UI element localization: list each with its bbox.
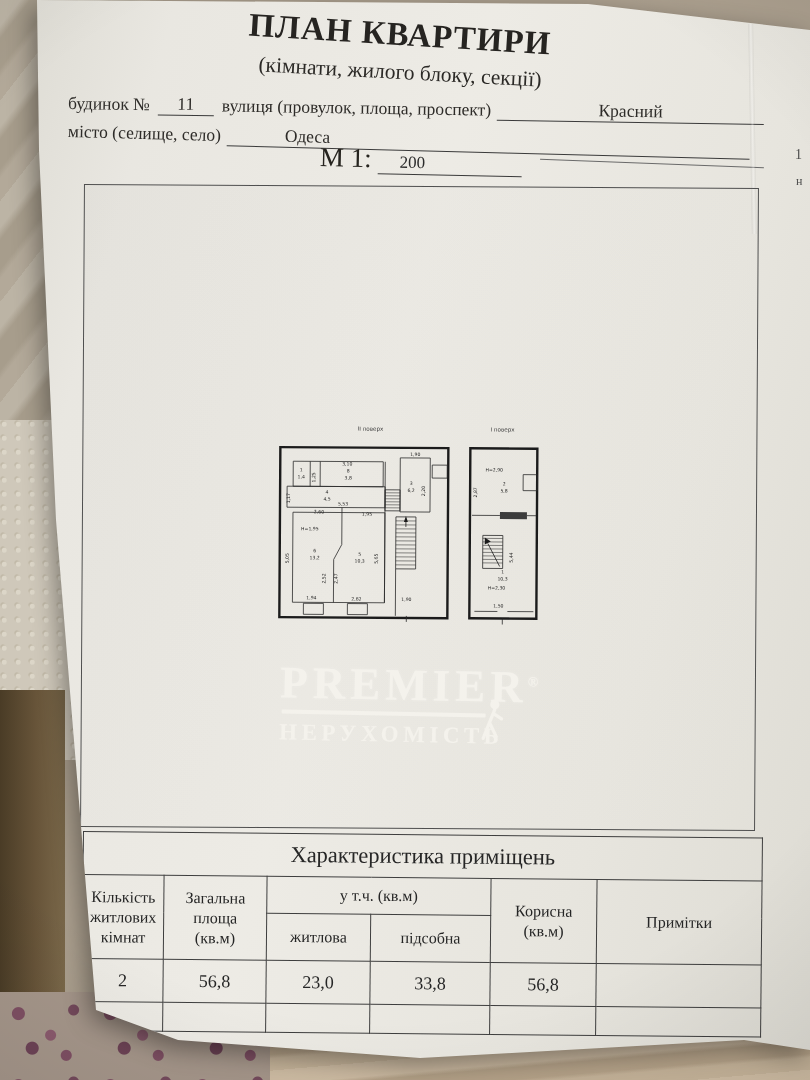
street-value: Красний bbox=[497, 99, 764, 125]
ruled-line bbox=[540, 159, 764, 169]
form-line-building-street: будинок № 11 вулиця (провулок, площа, пр… bbox=[68, 92, 764, 125]
person-icon bbox=[479, 698, 506, 743]
table-data-row: 2 56,8 23,0 33,8 56,8 bbox=[82, 958, 761, 1008]
plan-dimension-label: 3 bbox=[410, 481, 413, 486]
empty-cell bbox=[266, 1003, 370, 1033]
plan-dimension-label: 8 bbox=[347, 469, 350, 474]
col-header-living: житлова bbox=[266, 913, 370, 961]
plan-dimension-label: 1 bbox=[501, 569, 504, 574]
plan-dimension-label: 2,62 bbox=[351, 597, 361, 602]
floor-plan-drawing: ІІ поверх І поверх bbox=[269, 414, 550, 636]
building-number-value: 11 bbox=[158, 93, 214, 116]
table-title: Характеристика приміщень bbox=[83, 832, 762, 882]
street-label: вулиця (провулок, площа, проспект) bbox=[222, 95, 492, 120]
scale-label: М 1: bbox=[320, 142, 372, 174]
plan-dimension-label: Н=1,95 bbox=[301, 526, 319, 531]
registered-trademark-icon: ® bbox=[528, 674, 539, 689]
plan-dimension-label: 5,05 bbox=[285, 553, 290, 563]
plan-dimension-label: 4,5 bbox=[323, 496, 330, 501]
premier-logo: PREMIER® НЕРУХОМІСТЬ bbox=[279, 660, 541, 750]
col-header-useful: Корисна (кв.м) bbox=[490, 878, 597, 963]
empty-cell bbox=[370, 1004, 490, 1034]
paper-wrap: ПЛАН КВАРТИРИ (кімнати, жилого блоку, се… bbox=[0, 0, 810, 1080]
characteristics-table: Характеристика приміщень Кількість житло… bbox=[81, 831, 763, 1038]
plan-dimension-label: 1,4 bbox=[298, 474, 305, 479]
empty-cell bbox=[490, 1005, 596, 1035]
plan-dimension-label: 5,65 bbox=[374, 554, 379, 564]
floor-plan-first-floor bbox=[469, 448, 537, 624]
plan-dimension-label: 2,47 bbox=[334, 573, 339, 583]
col-header-rooms: Кількість житлових кімнат bbox=[82, 875, 164, 960]
plan-dimension-label: 2,20 bbox=[421, 486, 426, 496]
building-number-label: будинок № bbox=[68, 93, 150, 115]
edge-text-fragment: н bbox=[796, 174, 802, 189]
col-header-including: у т.ч. (кв.м) bbox=[267, 876, 491, 915]
plan-dimension-label: 3,8 bbox=[345, 476, 352, 481]
empty-cell bbox=[163, 1002, 266, 1032]
plan-border-frame: ІІ поверх І поверх bbox=[80, 184, 759, 831]
plan-dimension-label: 2,60 bbox=[314, 509, 324, 514]
table-empty-row bbox=[82, 1001, 761, 1037]
scale-line: М 1: 200 bbox=[320, 142, 522, 177]
first-floor-title: І поверх bbox=[490, 426, 515, 433]
plan-dimension-label: 1,95 bbox=[362, 512, 372, 517]
second-floor-dimension-labels: 3,1011,41,2583,81,1744,55,532,601,95Н=1,… bbox=[284, 451, 426, 602]
col-header-auxiliary: підсобна bbox=[370, 914, 490, 962]
plan-dimension-label: 1 bbox=[300, 467, 303, 472]
plan-dimension-label: 3,10 bbox=[342, 462, 352, 467]
plan-dimension-label: 13,2 bbox=[310, 555, 320, 560]
plan-dimension-label: 1,90 bbox=[401, 597, 411, 602]
plan-dimension-label: Н=2,30 bbox=[488, 585, 506, 590]
plan-dimension-label: 10,3 bbox=[355, 559, 365, 564]
cell-useful: 56,8 bbox=[490, 962, 596, 1006]
cell-total-area: 56,8 bbox=[163, 959, 266, 1003]
plan-dimension-label: 2,87 bbox=[473, 487, 478, 497]
plan-dimension-label: Н=2,90 bbox=[485, 467, 503, 472]
col-header-notes: Примітки bbox=[596, 879, 762, 965]
table-title-row: Характеристика приміщень bbox=[83, 832, 762, 882]
edge-text-fragment: 1 bbox=[795, 147, 802, 163]
cell-living: 23,0 bbox=[266, 960, 370, 1004]
photo-scene: ПЛАН КВАРТИРИ (кімнати, жилого блоку, се… bbox=[0, 0, 810, 1080]
plan-dimension-label: 5 bbox=[358, 552, 361, 557]
table-header-row: Кількість житлових кімнат Загальна площа… bbox=[83, 875, 762, 919]
plan-dimension-label: 4 bbox=[326, 489, 329, 494]
first-floor-dimension-labels: Н=2,9025,82,875,44110,3Н=2,301,50 bbox=[472, 467, 514, 608]
plan-dimension-label: 5,44 bbox=[509, 552, 514, 562]
plan-dimension-label: 6,2 bbox=[407, 488, 414, 493]
cell-auxiliary: 33,8 bbox=[370, 961, 490, 1005]
document-paper-sheet: ПЛАН КВАРТИРИ (кімнати, жилого блоку, се… bbox=[0, 0, 810, 1080]
plan-dimension-label: 1,50 bbox=[493, 603, 503, 608]
col-header-total-area: Загальна площа (кв.м) bbox=[163, 875, 267, 960]
scale-value: 200 bbox=[377, 152, 521, 177]
plan-dimension-label: 1,25 bbox=[311, 472, 316, 482]
plan-dimension-label: 5,8 bbox=[500, 488, 507, 493]
empty-cell bbox=[82, 1001, 163, 1031]
city-label: місто (селище, село) bbox=[68, 121, 221, 146]
plan-dimension-label: 10,3 bbox=[497, 576, 507, 581]
second-floor-title: ІІ поверх bbox=[358, 426, 384, 433]
plan-dimension-label: 2 bbox=[503, 482, 506, 487]
plan-dimension-label: 1,17 bbox=[286, 493, 291, 503]
plan-dimension-label: 5,53 bbox=[338, 502, 348, 507]
cell-rooms: 2 bbox=[82, 958, 163, 1002]
empty-cell bbox=[596, 1006, 761, 1037]
logo-divider-bar bbox=[280, 708, 540, 719]
plan-dimension-label: 1,94 bbox=[306, 595, 316, 600]
plan-dimension-label: 1,90 bbox=[410, 452, 420, 457]
cell-notes bbox=[596, 963, 761, 1008]
plan-dimension-label: 6 bbox=[313, 548, 316, 553]
plan-dimension-label: 2,52 bbox=[322, 573, 327, 583]
